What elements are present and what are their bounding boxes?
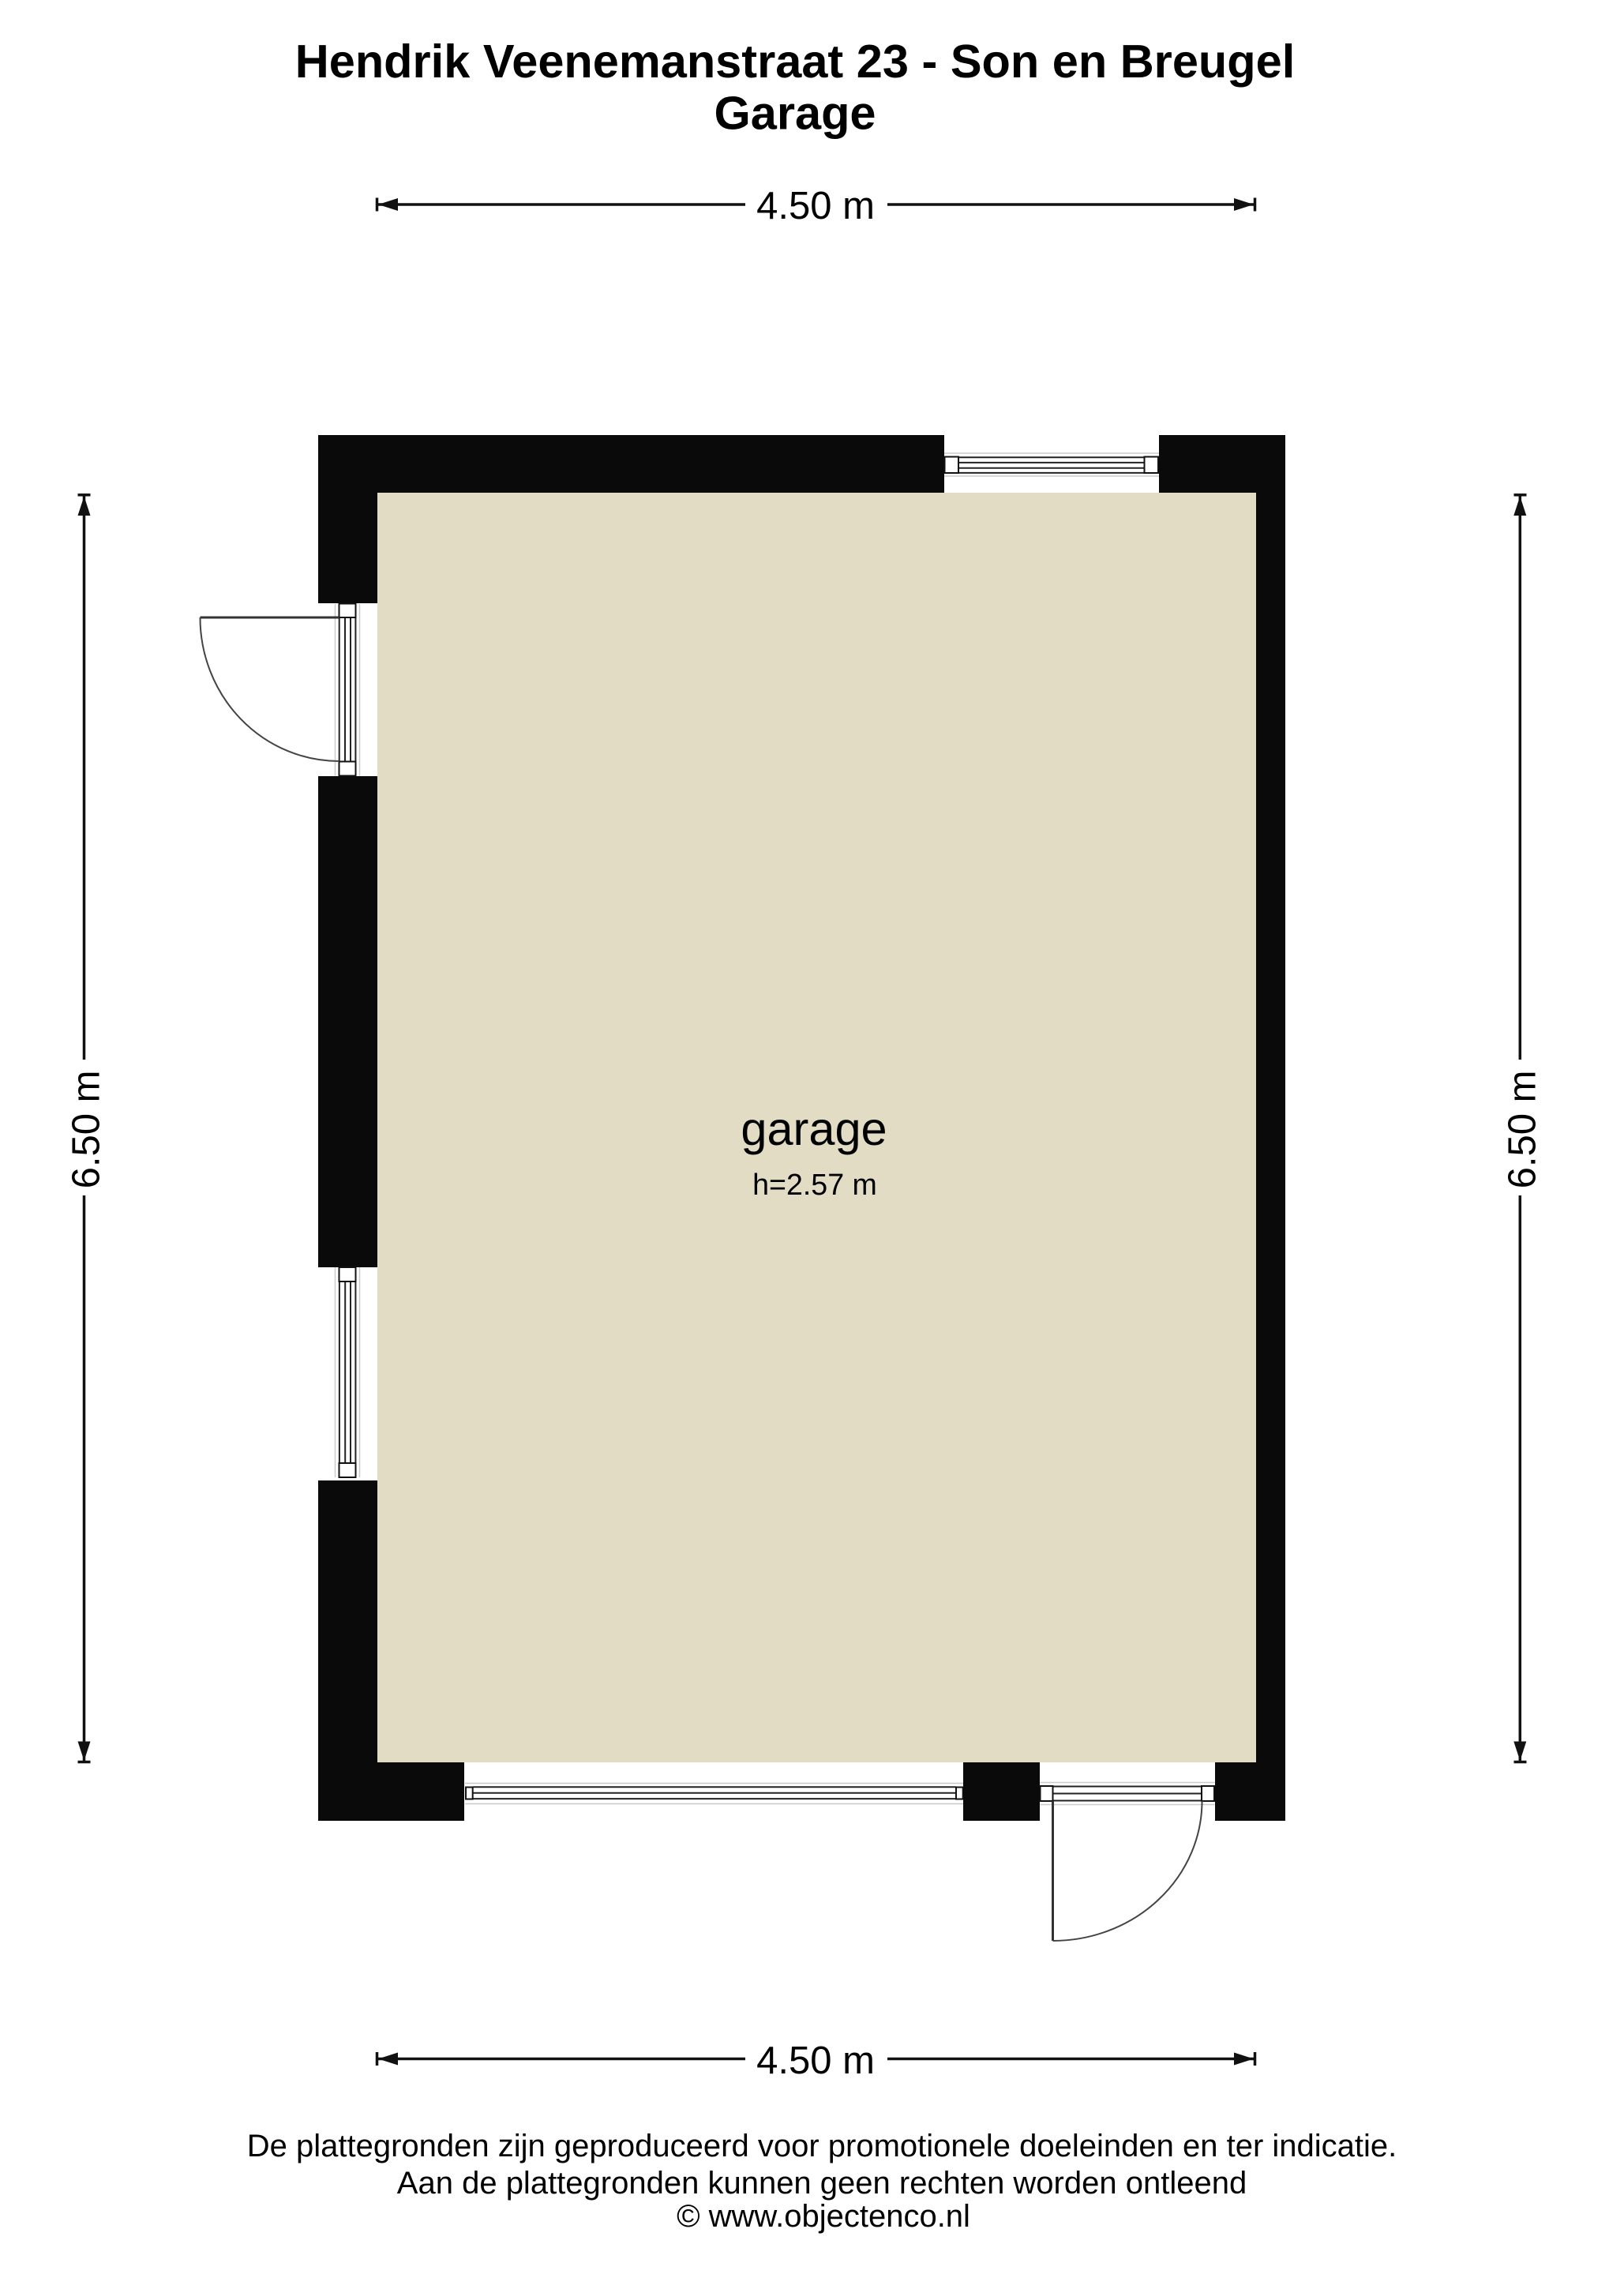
svg-text:Garage: Garage	[714, 87, 876, 140]
svg-text:4.50 m: 4.50 m	[756, 2039, 875, 2082]
svg-text:Aan de plattegronden kunnen ge: Aan de plattegronden kunnen geen rechten…	[397, 2166, 1247, 2201]
svg-text:6.50 m: 6.50 m	[66, 1071, 108, 1189]
svg-text:6.50 m: 6.50 m	[1502, 1071, 1544, 1189]
svg-text:Hendrik Veenemanstraat 23 - So: Hendrik Veenemanstraat 23 - Son en Breug…	[295, 35, 1295, 88]
svg-text:h=2.57 m: h=2.57 m	[752, 1168, 877, 1201]
svg-text:garage: garage	[741, 1102, 887, 1155]
svg-text:4.50 m: 4.50 m	[756, 185, 875, 227]
svg-text:De plattegronden zijn geproduc: De plattegronden zijn geproduceerd voor …	[247, 2129, 1397, 2163]
svg-text:© www.objectenco.nl: © www.objectenco.nl	[677, 2199, 970, 2234]
